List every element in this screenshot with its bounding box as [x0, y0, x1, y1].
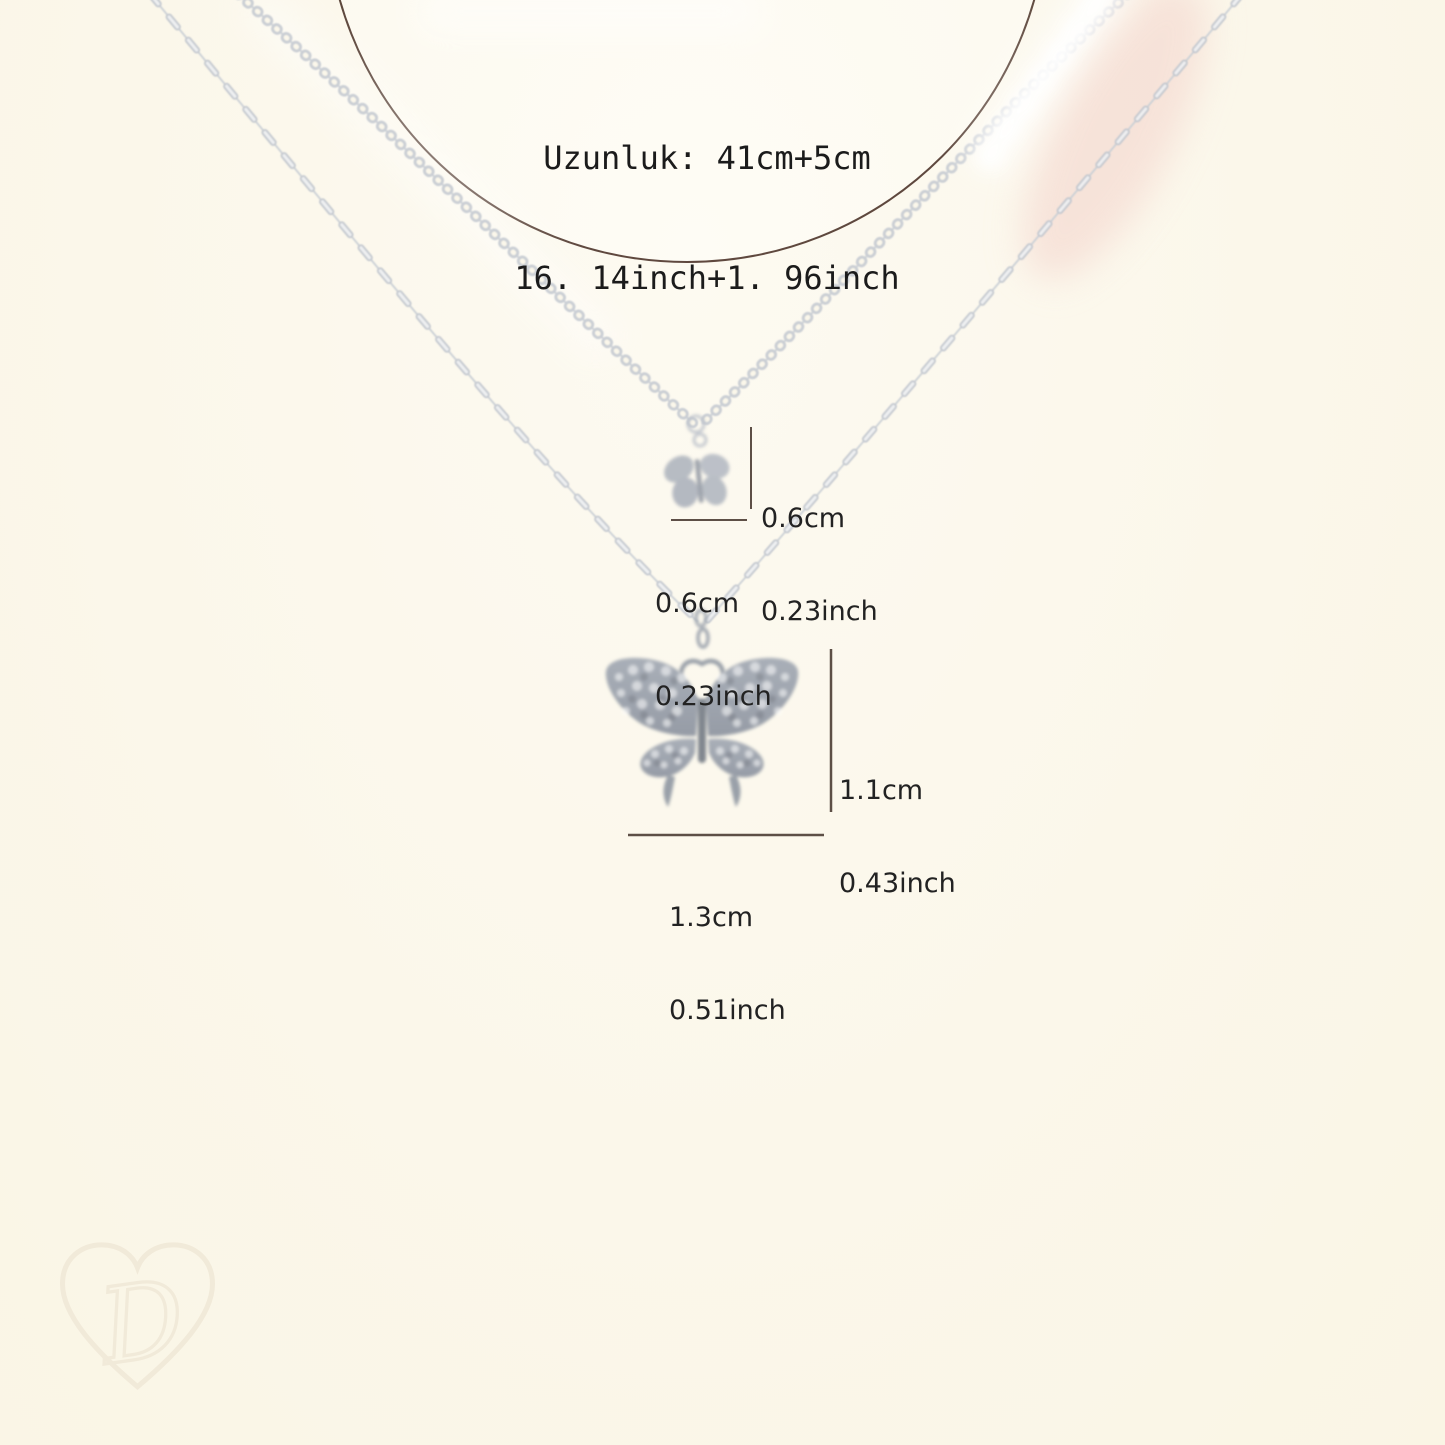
length-cm-text: Uzunluk: 41cm+5cm: [377, 138, 1037, 178]
small-butterfly-icon: [657, 445, 737, 513]
necklace-size-chart: D Uzunluk: 41cm+5cm 16. 14inch+1. 96inch…: [0, 0, 1445, 1445]
watermark-letter: D: [90, 1256, 192, 1389]
small-width-inch: 0.23inch: [655, 681, 772, 712]
large-height-cm: 1.1cm: [839, 775, 956, 806]
large-height-inch: 0.43inch: [839, 868, 956, 899]
large-width-inch: 0.51inch: [669, 995, 786, 1026]
small-height-cm: 0.6cm: [761, 503, 878, 534]
small-pendant-height-label: 0.6cm 0.23inch: [761, 441, 878, 689]
watermark-heart-logo: D: [63, 1245, 213, 1389]
length-inch-text: 16. 14inch+1. 96inch: [377, 258, 1037, 298]
large-pendant-height-label: 1.1cm 0.43inch: [839, 713, 956, 961]
small-butterfly-pendant: [657, 416, 737, 513]
small-height-inch: 0.23inch: [761, 596, 878, 627]
large-pendant-width-label: 1.3cm 0.51inch: [669, 840, 786, 1088]
large-width-cm: 1.3cm: [669, 902, 786, 933]
small-pendant-width-label: 0.6cm 0.23inch: [655, 526, 772, 774]
highlight-streak: [420, 0, 760, 32]
necklace-length-label: Uzunluk: 41cm+5cm 16. 14inch+1. 96inch: [377, 58, 1037, 378]
small-width-cm: 0.6cm: [655, 588, 772, 619]
